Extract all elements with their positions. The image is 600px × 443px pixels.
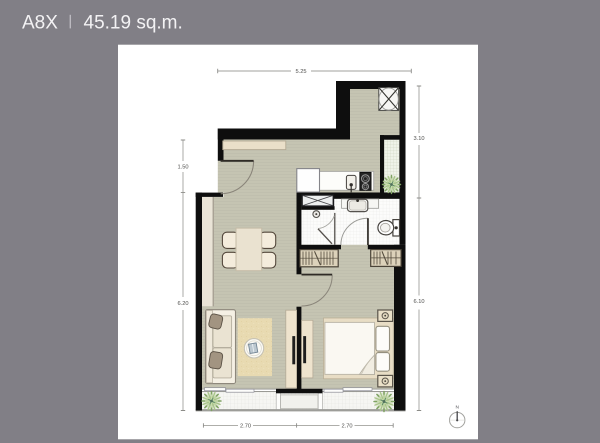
svg-text:A8X: A8X (22, 13, 58, 34)
svg-text:3.10: 3.10 (413, 136, 424, 142)
svg-text:1.50: 1.50 (177, 165, 188, 171)
svg-text:6.10: 6.10 (413, 299, 424, 305)
svg-text:5.25: 5.25 (295, 69, 306, 75)
svg-text:6.20: 6.20 (177, 301, 188, 307)
svg-text:45.19 sq.m.: 45.19 sq.m. (84, 13, 183, 34)
svg-text:N: N (455, 405, 459, 411)
svg-text:2.70: 2.70 (341, 424, 352, 430)
svg-text:2.70: 2.70 (240, 424, 251, 430)
